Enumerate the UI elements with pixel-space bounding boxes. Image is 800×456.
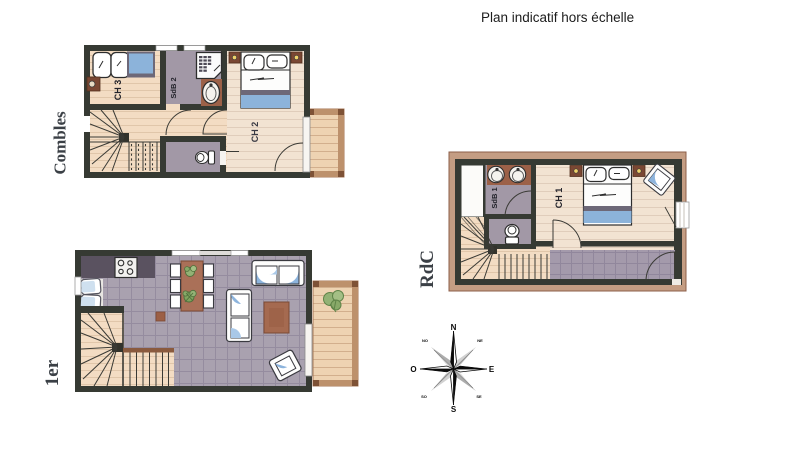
svg-text:NE: NE — [477, 338, 483, 343]
svg-text:1er: 1er — [42, 359, 63, 386]
svg-text:CH 3: CH 3 — [113, 80, 123, 101]
svg-text:RdC: RdC — [417, 250, 438, 288]
svg-text:N: N — [451, 323, 457, 332]
svg-text:Combles: Combles — [51, 111, 70, 175]
svg-text:SdB 1: SdB 1 — [490, 187, 499, 208]
svg-text:Plan indicatif hors échelle: Plan indicatif hors échelle — [481, 10, 634, 25]
svg-text:SO: SO — [421, 394, 427, 399]
svg-text:NO: NO — [422, 338, 428, 343]
svg-text:CH 1: CH 1 — [554, 188, 564, 209]
svg-text:S: S — [451, 405, 457, 414]
svg-text:CH 2: CH 2 — [250, 122, 260, 143]
svg-text:SdB 2: SdB 2 — [169, 77, 178, 98]
svg-text:O: O — [410, 365, 416, 374]
svg-text:SE: SE — [476, 394, 482, 399]
svg-text:E: E — [489, 365, 495, 374]
